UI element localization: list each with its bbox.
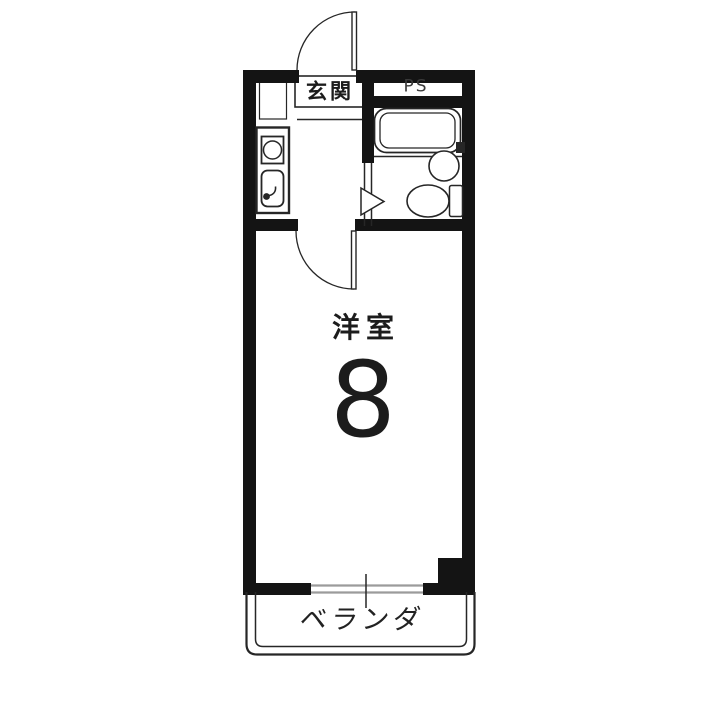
floor-plan: 玄関 PS 洋室 8 ベランダ [0, 0, 720, 720]
wall-bottom-left [243, 583, 311, 595]
stove-burner [264, 141, 282, 159]
bathroom-door-swing-marker [361, 188, 384, 215]
room-door-leaf [352, 231, 357, 289]
bathtub-inner [380, 113, 455, 148]
kitchen-unit [257, 128, 290, 214]
veranda-label: ベランダ [298, 607, 426, 634]
bath-faucet [456, 142, 465, 153]
window [311, 574, 423, 608]
wall-mid-right [355, 219, 475, 231]
wall-mid-left [243, 219, 298, 231]
toilet-bowl [407, 185, 449, 217]
kitchen-sink [262, 171, 284, 207]
sink-faucet [263, 193, 270, 200]
room-size-label: 8 [330, 348, 396, 452]
entrance-door-leaf [352, 12, 357, 70]
entrance-door-arc [297, 12, 355, 70]
wall-left [243, 70, 256, 595]
bathroom [374, 109, 465, 218]
wall-bathroom-vertical [362, 83, 374, 163]
toilet-tank [450, 186, 463, 217]
room-label: 洋室 [332, 314, 400, 342]
pillar [438, 558, 475, 595]
wall-pipe-space [362, 96, 462, 108]
wash-basin [429, 151, 459, 181]
room-door-arc [296, 231, 354, 289]
entrance-label: 玄関 [306, 82, 354, 103]
pipe-space-label: PS [403, 79, 428, 96]
